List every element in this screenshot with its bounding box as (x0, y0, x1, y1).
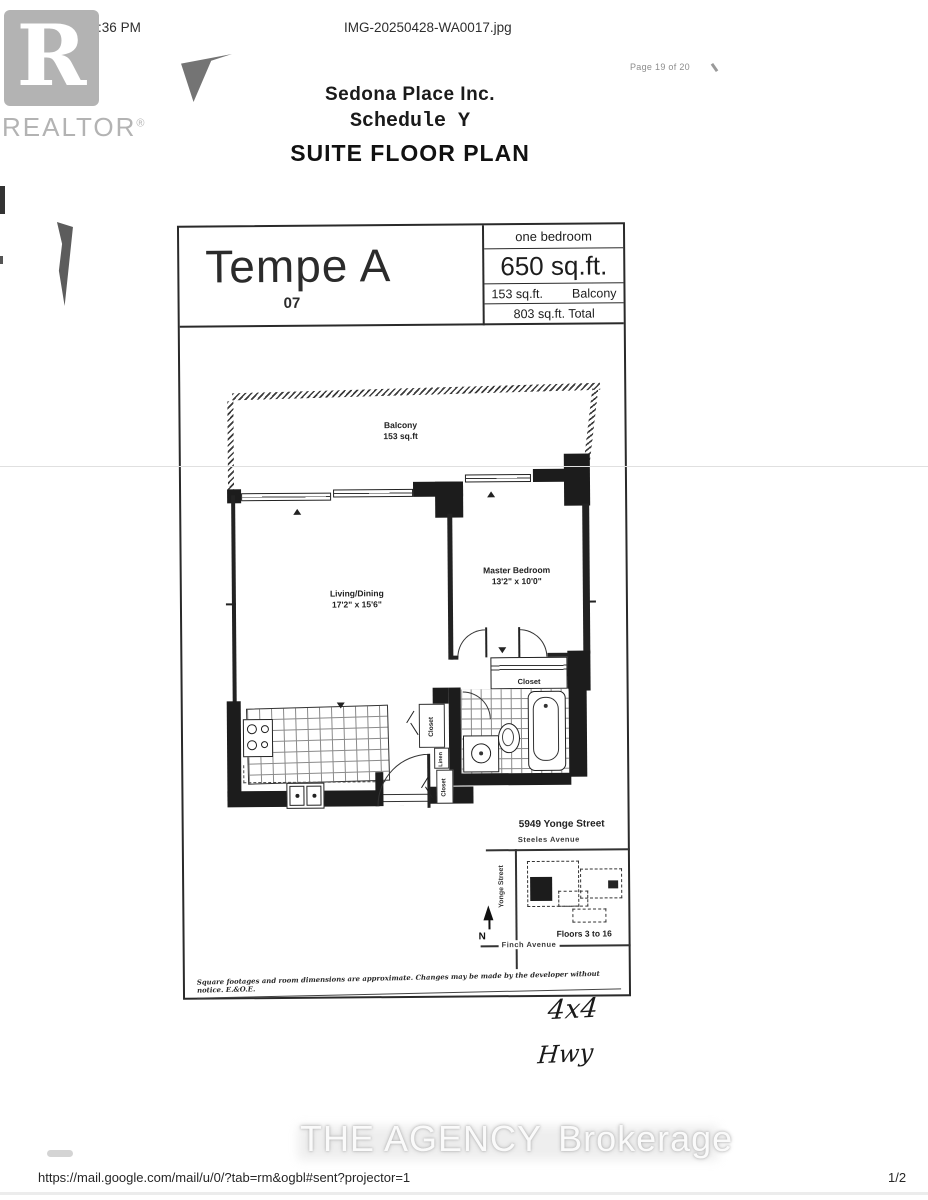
door-marker (498, 647, 506, 653)
sink-drain (479, 751, 483, 755)
master-bedroom-name: Master Bedroom (467, 565, 567, 577)
document-title: Sedona Place Inc. Schedule Y SUITE FLOOR… (250, 84, 570, 167)
balcony-area: 153 sq.ft (331, 431, 471, 443)
linen-label: Linen (438, 750, 444, 769)
scan-artifact-sliver (48, 222, 80, 306)
kitchen-marker (337, 702, 345, 708)
entry-closet: Closet (419, 704, 445, 748)
scan-artifact-tick (711, 63, 719, 72)
street-finch: Finch Avenue (499, 940, 560, 949)
master-bedroom-dims: 13'2" x 10'0" (467, 576, 567, 588)
linen-closet: Linen (434, 748, 449, 769)
door-leaf (485, 627, 487, 657)
stove-burner (261, 725, 269, 733)
living-dining-dims: 17'2" x 15'6" (277, 599, 437, 611)
sink-drain (312, 794, 316, 798)
window-marker (487, 491, 495, 497)
realtor-r-glyph: R (17, 14, 87, 98)
street-steeles: Steeles Avenue (494, 834, 604, 844)
window (465, 474, 531, 483)
window (241, 493, 331, 502)
wall-tick (586, 600, 596, 602)
living-dining-label: Living/Dining 17'2" x 15'6" (277, 588, 437, 611)
map-building-outline (558, 891, 588, 907)
master-bedroom-label: Master Bedroom 13'2" x 10'0" (467, 565, 567, 588)
balcony-railing (227, 401, 234, 491)
plan-title-box: Tempe A 07 one bedroom 650 sq.ft. 153 sq… (179, 224, 624, 327)
suite-model-name: Tempe A (205, 238, 391, 293)
agency-suffix: Brokerage (558, 1118, 733, 1159)
toilet (498, 723, 520, 753)
door-arc (519, 629, 547, 657)
bedroom-closet-label: Closet (492, 677, 567, 687)
agency-watermark: THE AGENCYBrokerage (300, 1118, 730, 1160)
bathroom-wall (449, 773, 571, 786)
map-building-outline (572, 908, 606, 922)
realtor-wordmark: REALTOR® (2, 112, 147, 143)
scan-artifact-triangle (180, 54, 232, 102)
balcony-area-label: Balcony (572, 286, 617, 300)
page-indicator: Page 19 of 20 (630, 62, 690, 72)
balcony-railing (232, 383, 600, 401)
agency-name: THE AGENCY (300, 1118, 542, 1159)
exterior-wall (227, 701, 242, 801)
toilet-bowl (502, 728, 514, 746)
bifold-door-line (410, 723, 418, 735)
suite-area: 650 sq.ft. (484, 248, 623, 284)
map-road-line (486, 848, 630, 851)
door-arc (457, 629, 485, 657)
scan-smudge (47, 1150, 73, 1157)
map-road-line (515, 849, 517, 969)
site-map: 5949 Yonge Street Steeles Avenue Yonge S… (472, 816, 633, 975)
kitchen-sink (286, 783, 324, 809)
scan-line (0, 466, 928, 467)
wall-corner (564, 454, 590, 506)
wall-pillar (435, 482, 463, 518)
bathroom-wall (569, 687, 588, 777)
floor-plan-sheet: Tempe A 07 one bedroom 650 sq.ft. 153 sq… (177, 222, 631, 999)
compass-n-label: N (479, 931, 486, 942)
wall-stub (450, 656, 458, 660)
print-url: https://mail.google.com/mail/u/0/?tab=rm… (38, 1170, 410, 1185)
entry-closet: Closet (436, 770, 453, 804)
sink-drain (295, 794, 299, 798)
suite-type: one bedroom (484, 224, 623, 249)
exterior-wall (231, 495, 236, 703)
site-address: 5949 Yonge Street (492, 818, 632, 830)
total-area: 803 sq.ft. Total (485, 303, 624, 324)
door-leaf (518, 627, 520, 657)
schedule-label: Schedule Y (250, 110, 570, 133)
bathtub-drain (544, 704, 548, 708)
exterior-wall (582, 504, 590, 654)
realtor-logo-icon: R (4, 10, 99, 106)
balcony-area-row: 153 sq.ft. Balcony (484, 283, 623, 304)
bathtub (528, 691, 567, 771)
suite-unit-number: 07 (284, 295, 301, 312)
window (333, 489, 413, 498)
entry-door-leaf (427, 754, 430, 808)
realtor-text: REALTOR (2, 112, 136, 142)
entry-closet-label: Closet (441, 773, 447, 803)
balcony-area-value: 153 sq.ft. (491, 286, 543, 300)
map-subject-building (530, 877, 552, 901)
window-marker (293, 509, 301, 515)
wall-tick (226, 603, 236, 605)
scanned-floor-plan-page: 6/12/25, 5:36 PM IMG-20250428-WA0017.jpg… (0, 0, 928, 1200)
area-summary-box: one bedroom 650 sq.ft. 153 sq.ft. Balcon… (482, 224, 624, 325)
north-arrow-icon (483, 905, 493, 920)
stove-burner (247, 740, 257, 750)
stove-burner (261, 741, 268, 748)
handwritten-note: Hwy (537, 1039, 595, 1070)
balcony-label: Balcony 153 sq.ft (331, 419, 471, 442)
wall-segment (433, 688, 449, 704)
floors-label: Floors 3 to 16 (557, 928, 612, 938)
stove-burner (247, 724, 257, 734)
building-name: Sedona Place Inc. (250, 84, 570, 106)
handwritten-note: 4x4 (546, 993, 599, 1027)
north-arrow-stem (488, 919, 490, 929)
print-filename: IMG-20250428-WA0017.jpg (344, 20, 512, 35)
counter-dashed-line (243, 765, 245, 783)
bedroom-closet: Closet (490, 657, 567, 690)
scan-artifact-edge (0, 256, 3, 264)
scan-band (0, 1192, 928, 1195)
bifold-door-line (406, 711, 414, 723)
registered-mark: ® (136, 117, 146, 129)
scan-artifact-edge (0, 186, 5, 214)
stove (243, 719, 273, 757)
map-building-solid (608, 880, 618, 888)
street-yonge: Yonge Street (498, 865, 505, 908)
bathroom-vanity (463, 735, 499, 772)
wall-corner (567, 651, 590, 691)
interior-wall (447, 514, 453, 660)
wall-segment (533, 469, 565, 482)
entry-closet-label: Closet (428, 708, 435, 746)
suite-floor-plan-title: SUITE FLOOR PLAN (250, 140, 570, 167)
page-fraction: 1/2 (888, 1170, 906, 1185)
